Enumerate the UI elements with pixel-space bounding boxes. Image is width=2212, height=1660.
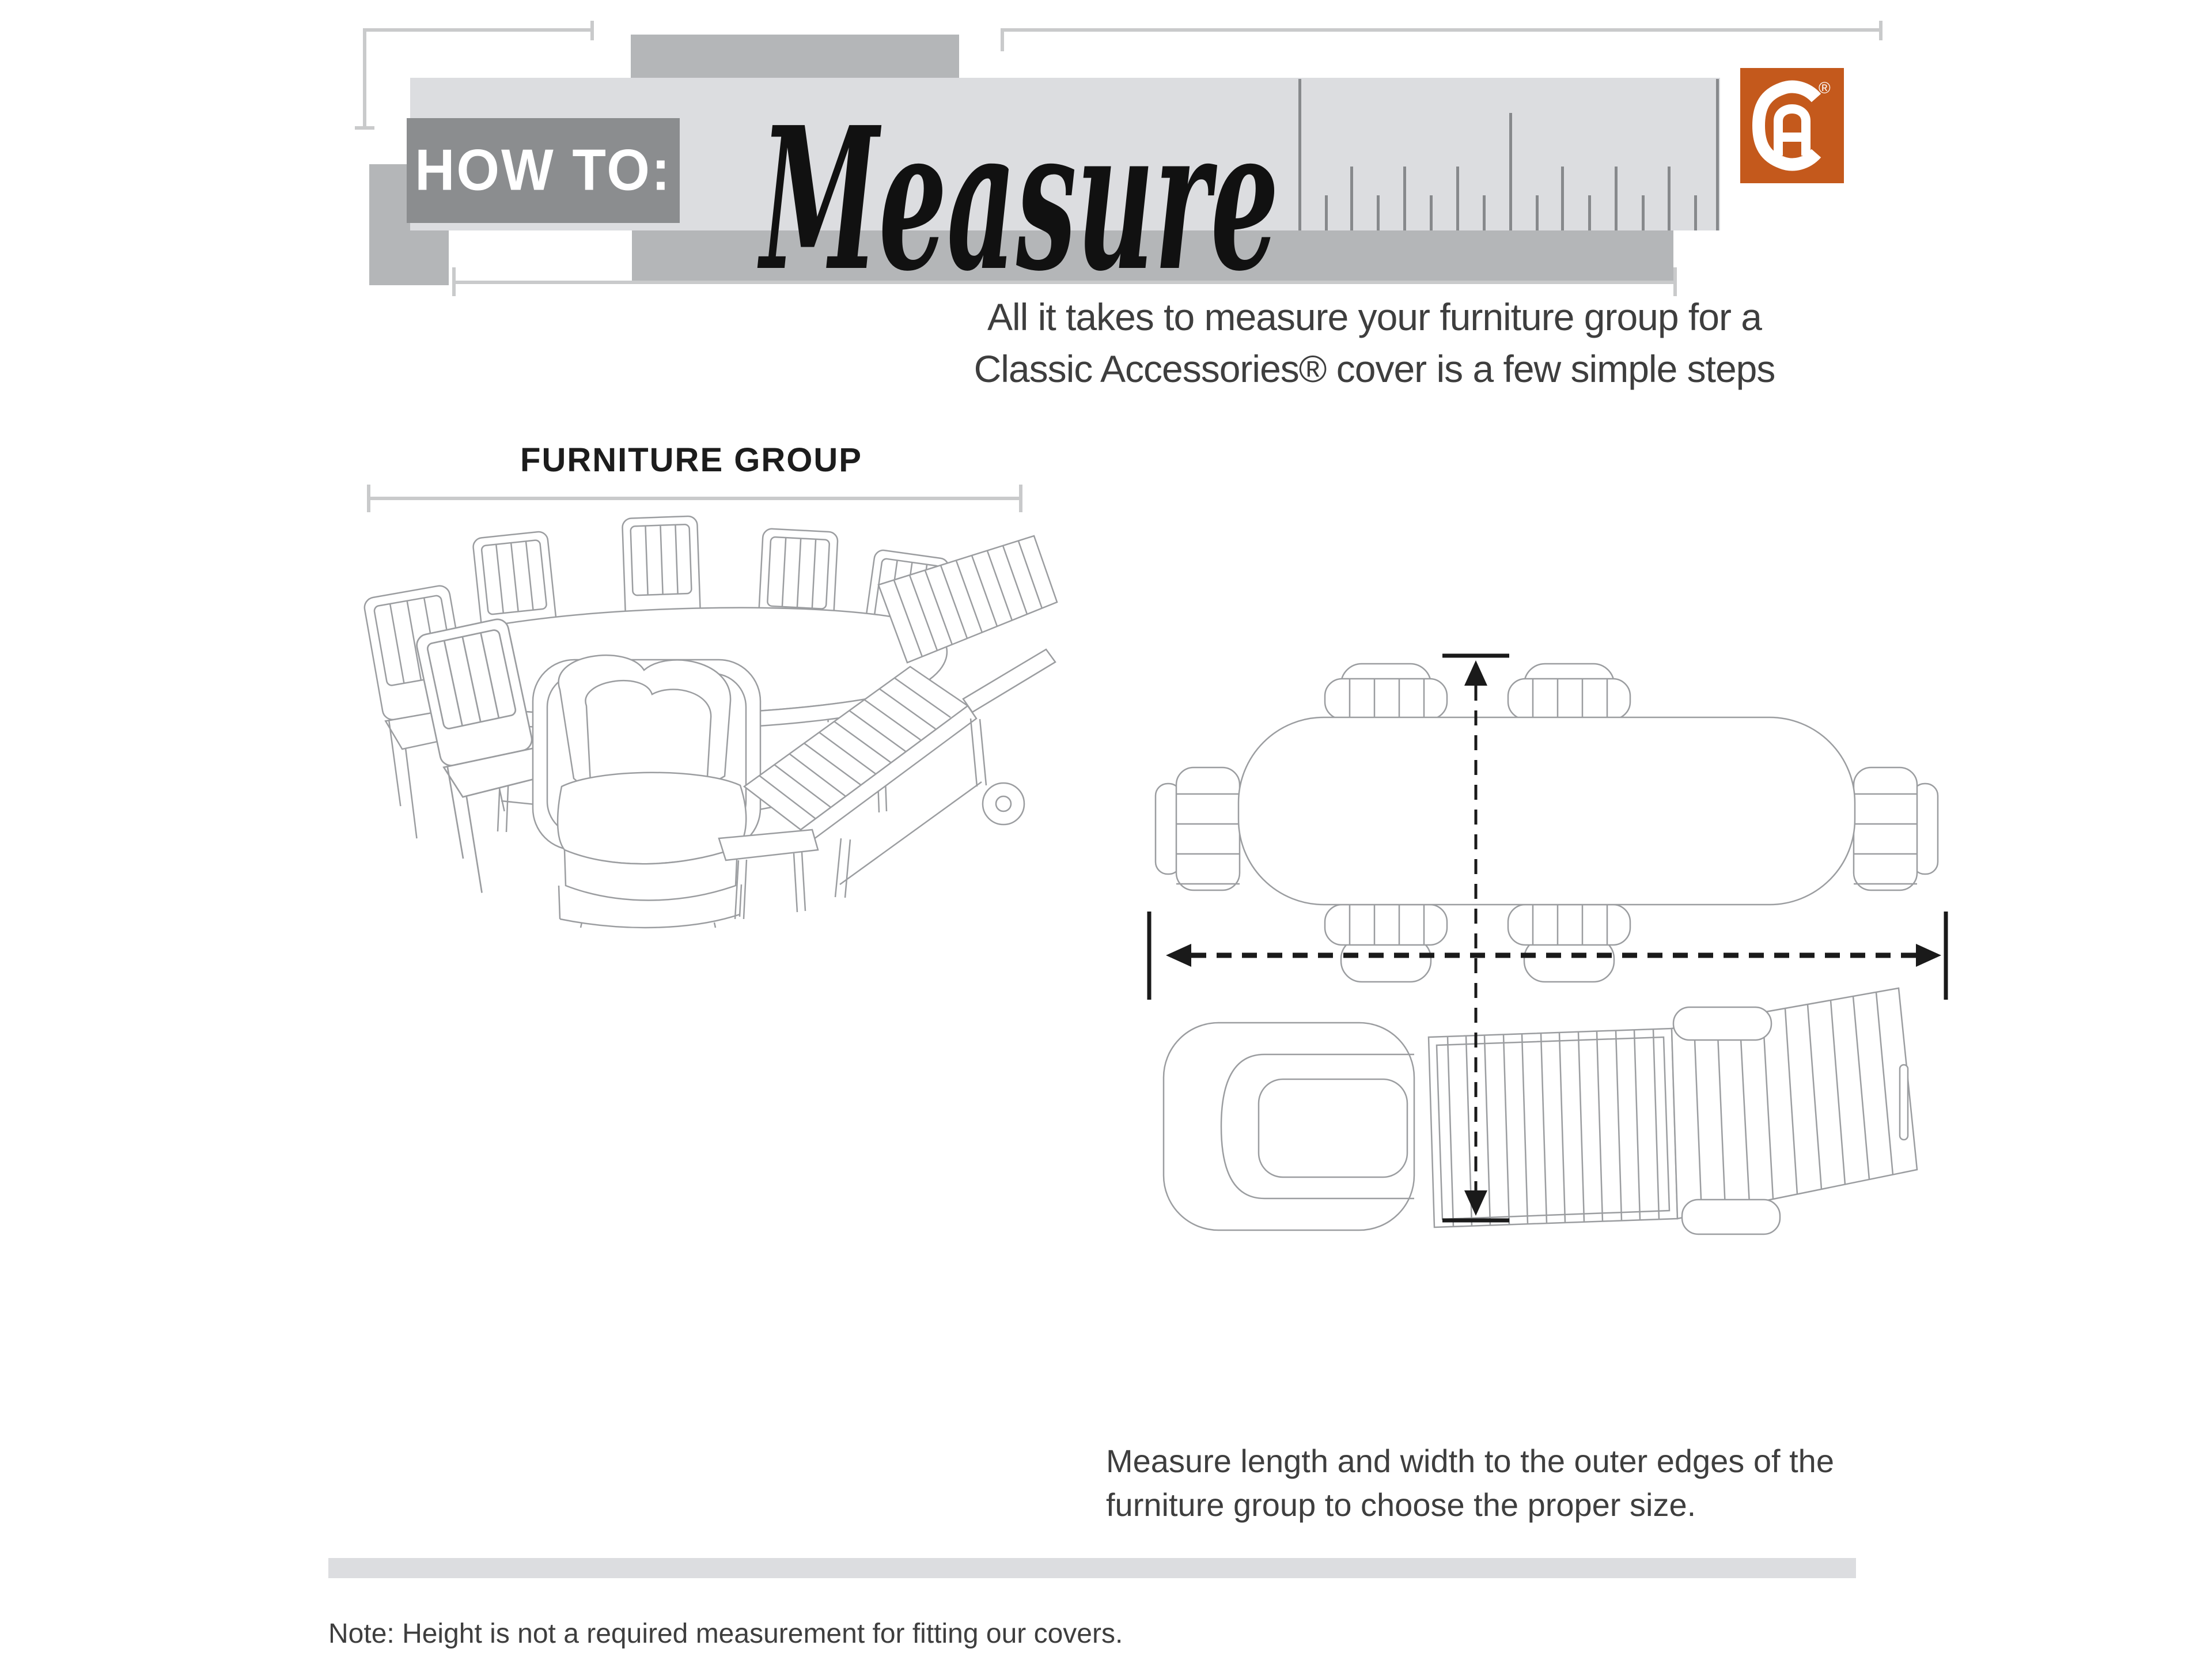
header-top-right-right-tick [1879, 21, 1883, 40]
topdown-chaise [1429, 988, 1917, 1234]
topdown-armrest-pad-bottom [1682, 1200, 1780, 1234]
header-top-right-left-tick [1001, 28, 1004, 51]
wicker-armchair [533, 655, 760, 928]
bracket-top-left-right-tick [590, 21, 594, 40]
subtitle-line1: All it takes to measure your furniture g… [887, 291, 1862, 343]
ruler-tick-s [1588, 195, 1591, 230]
measure-instruction-line2: furniture group to choose the proper siz… [1106, 1483, 1878, 1527]
ruler-tick-s [1325, 195, 1328, 230]
furniture-measure-line [369, 497, 1021, 500]
measure-instruction: Measure length and width to the outer ed… [1106, 1439, 1878, 1527]
ruler-tick-m [1615, 167, 1618, 230]
subtitle: All it takes to measure your furniture g… [887, 291, 1862, 395]
ruler-tick-m [1668, 167, 1671, 230]
brand-logo: ® [1740, 68, 1844, 183]
ruler-tick-s [1377, 195, 1380, 230]
header-bottom-line-left-tick [452, 267, 456, 296]
svg-text:®: ® [1819, 79, 1831, 97]
measure-instruction-line1: Measure length and width to the outer ed… [1106, 1439, 1878, 1483]
topdown-armrest-pad-top [1673, 1007, 1771, 1040]
ruler-tick-s [1430, 195, 1433, 230]
ruler-tick-m [1403, 167, 1406, 230]
topdown-chair-bottom-left [1325, 905, 1447, 982]
ruler-tick-s [1694, 195, 1697, 230]
bracket-top-left-bottom-tick [355, 126, 374, 130]
furniture-measure-left-tick [367, 485, 370, 512]
ruler-tick-m [1350, 167, 1353, 230]
topdown-chair-top-right [1508, 664, 1630, 719]
topdown-armchair [1164, 1023, 1414, 1230]
howto-label-box: HOW TO: [407, 118, 680, 223]
topdown-chair-top-left [1325, 664, 1447, 719]
header-top-gray-box [631, 35, 959, 78]
ruler-tick-m [1456, 167, 1459, 230]
topdown-chair-bottom-right [1508, 905, 1630, 982]
furniture-measure-right-tick [1019, 485, 1022, 512]
furniture-group-illustration [357, 516, 1060, 931]
topdown-table [1238, 717, 1855, 905]
subtitle-line2: Classic Accessories® cover is a few simp… [887, 343, 1862, 395]
top-down-diagram [1141, 650, 1959, 1249]
howto-label: HOW TO: [415, 137, 672, 204]
ruler-tick-s [1642, 195, 1645, 230]
measure-script-text: Measure [749, 81, 1302, 323]
note-text: Note: Height is not a required measureme… [328, 1618, 1123, 1650]
bracket-top-left-hline [363, 28, 594, 32]
ruler-tick-xl [1716, 79, 1719, 230]
infographic-page: HOW TO: Measure ® All it takes to measur… [0, 0, 2212, 1660]
topdown-chair-right [1854, 767, 1938, 890]
topdown-chair-left [1156, 767, 1240, 890]
bracket-top-left-vline [363, 28, 366, 128]
header-bottom-line [454, 281, 1675, 284]
ruler-tick-m [1561, 167, 1564, 230]
classic-accessories-monogram-icon: ® [1740, 68, 1844, 183]
header-top-right-line [1001, 28, 1883, 32]
furniture-group-label: FURNITURE GROUP [403, 441, 979, 479]
bottom-divider-bar [328, 1558, 1856, 1578]
ruler-tick-l [1509, 113, 1512, 230]
ruler-tick-s [1536, 195, 1539, 230]
ruler-tick-s [1483, 195, 1486, 230]
